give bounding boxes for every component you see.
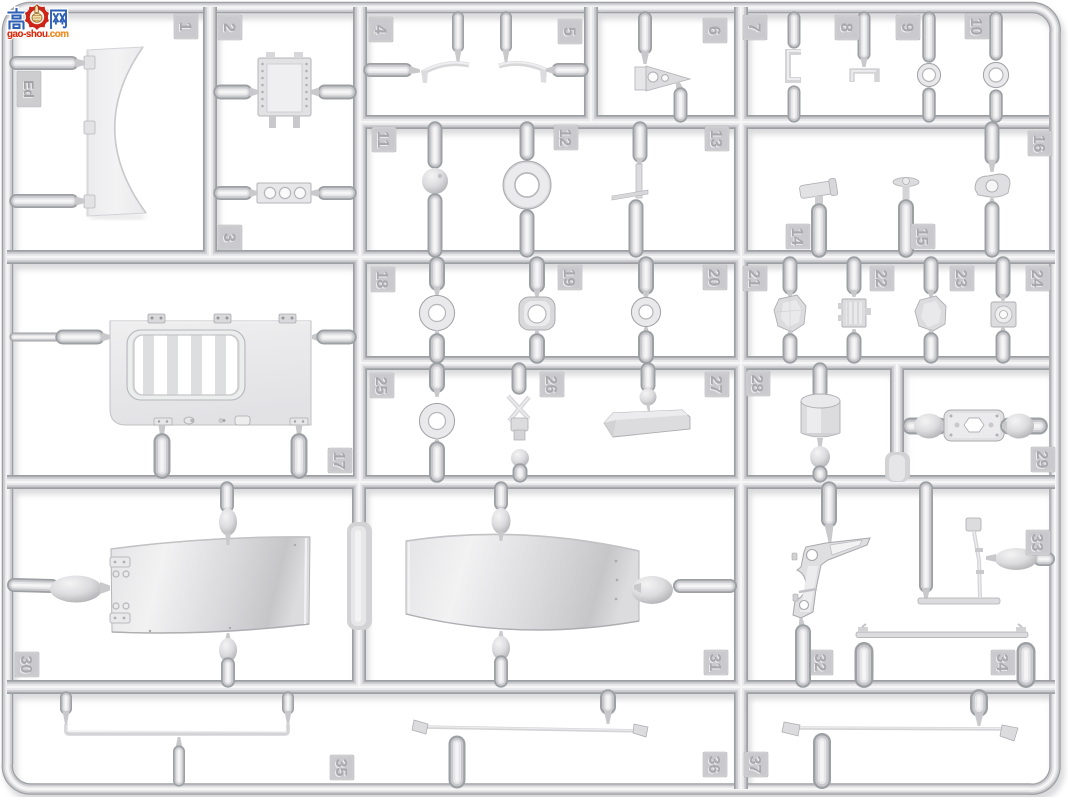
svg-text:18: 18 bbox=[373, 271, 390, 289]
svg-text:12: 12 bbox=[556, 129, 573, 147]
svg-text:1: 1 bbox=[176, 22, 194, 31]
svg-text:Ed: Ed bbox=[21, 80, 37, 98]
svg-text:25: 25 bbox=[372, 377, 389, 395]
svg-text:6: 6 bbox=[705, 26, 723, 35]
svg-text:5: 5 bbox=[560, 27, 578, 36]
svg-text:15: 15 bbox=[913, 228, 930, 246]
svg-text:28: 28 bbox=[748, 375, 765, 393]
svg-text:4: 4 bbox=[371, 25, 389, 35]
svg-text:9: 9 bbox=[898, 23, 916, 32]
svg-text:10: 10 bbox=[967, 18, 984, 36]
svg-text:26: 26 bbox=[542, 376, 559, 394]
svg-text:3: 3 bbox=[220, 233, 238, 242]
svg-text:29: 29 bbox=[1033, 451, 1050, 469]
svg-text:34: 34 bbox=[993, 654, 1010, 672]
svg-text:27: 27 bbox=[707, 376, 724, 394]
svg-text:2: 2 bbox=[220, 23, 238, 32]
svg-text:8: 8 bbox=[837, 23, 855, 32]
svg-text:30: 30 bbox=[17, 656, 34, 674]
svg-text:22: 22 bbox=[872, 270, 889, 288]
svg-text:37: 37 bbox=[746, 756, 763, 774]
svg-text:33: 33 bbox=[1028, 534, 1045, 552]
svg-text:gao-shou.com: gao-shou.com bbox=[7, 29, 69, 40]
svg-text:11: 11 bbox=[374, 131, 391, 148]
svg-text:17: 17 bbox=[330, 452, 347, 470]
svg-text:35: 35 bbox=[332, 759, 349, 777]
svg-text:16: 16 bbox=[1030, 135, 1047, 153]
svg-text:32: 32 bbox=[811, 654, 828, 672]
svg-text:14: 14 bbox=[788, 228, 805, 246]
svg-text:31: 31 bbox=[706, 654, 723, 672]
svg-text:13: 13 bbox=[707, 130, 724, 148]
svg-text:20: 20 bbox=[705, 269, 722, 287]
svg-text:7: 7 bbox=[745, 23, 763, 32]
svg-text:19: 19 bbox=[560, 269, 577, 287]
svg-text:23: 23 bbox=[952, 270, 969, 288]
svg-text:21: 21 bbox=[745, 270, 762, 288]
svg-text:24: 24 bbox=[1028, 270, 1045, 288]
svg-text:36: 36 bbox=[705, 756, 722, 774]
